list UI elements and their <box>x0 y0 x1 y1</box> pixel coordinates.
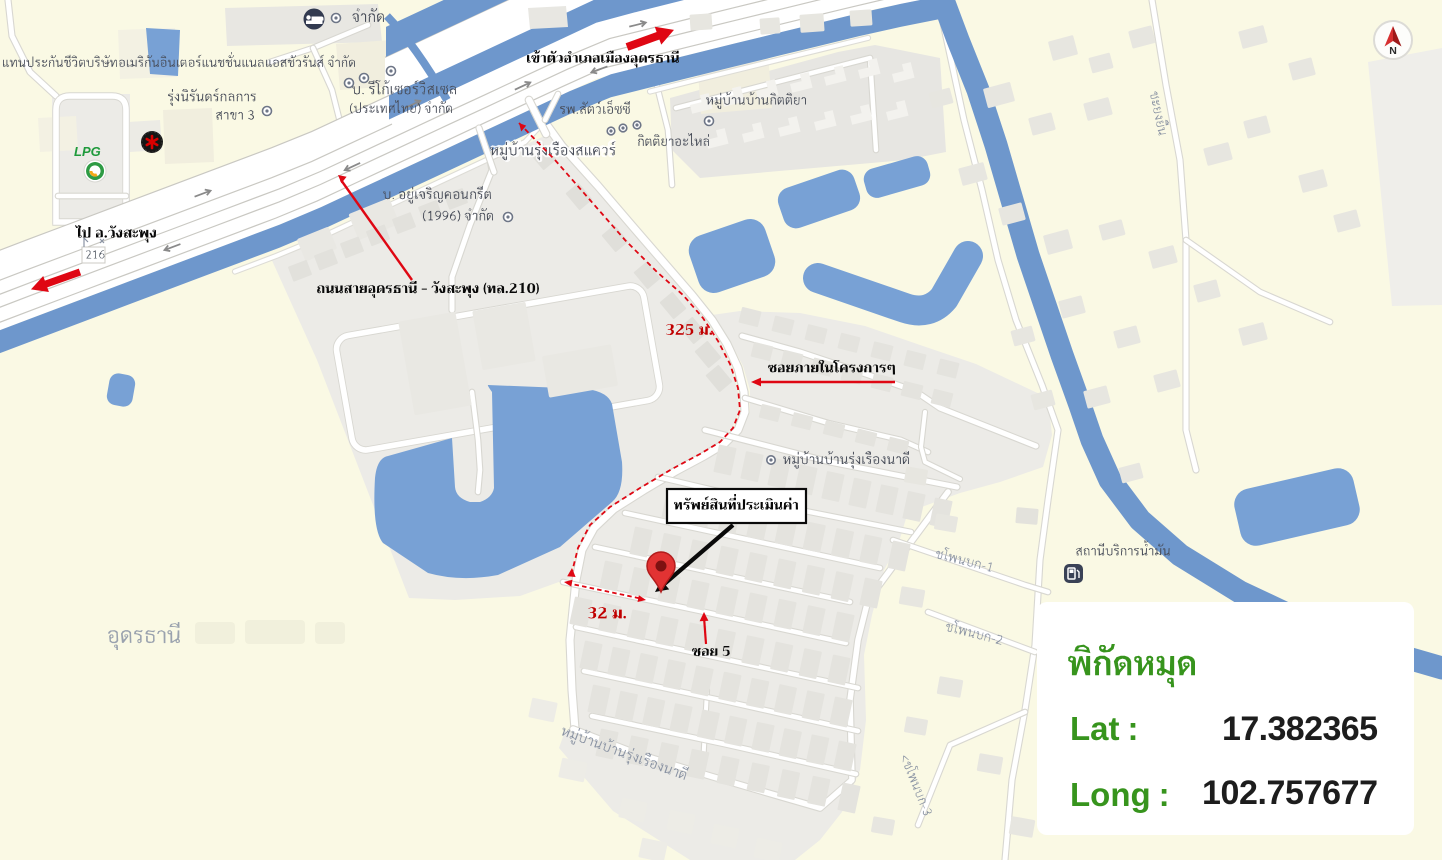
svg-text:102.757677: 102.757677 <box>1202 774 1378 812</box>
svg-text:Lat:: Lat: <box>1070 710 1139 747</box>
svg-text:LPG: LPG <box>74 144 101 159</box>
svg-text:17.382365: 17.382365 <box>1222 710 1378 748</box>
svg-text:N: N <box>1389 45 1397 57</box>
